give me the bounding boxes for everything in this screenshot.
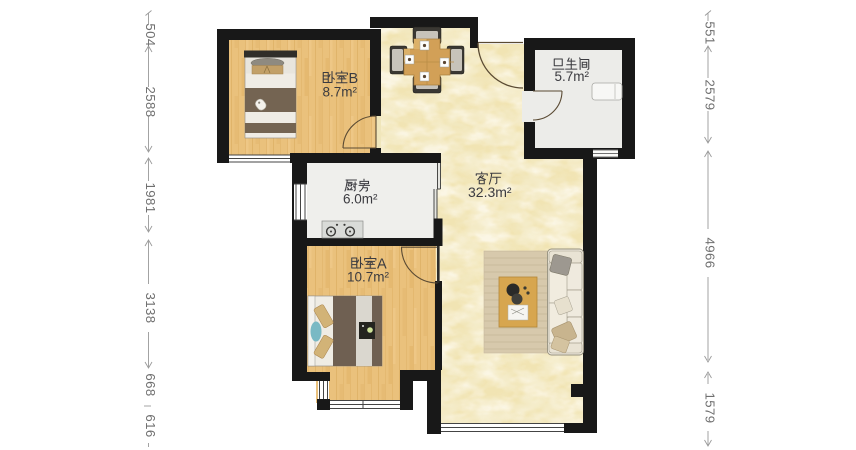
- svg-text:10.7m²: 10.7m²: [347, 270, 390, 285]
- svg-text:32.3m²: 32.3m²: [468, 184, 512, 200]
- svg-text:2588: 2588: [143, 87, 158, 118]
- svg-text:4966: 4966: [703, 238, 718, 269]
- svg-text:668: 668: [143, 373, 158, 396]
- svg-text:2579: 2579: [703, 80, 718, 111]
- svg-text:616: 616: [143, 414, 158, 437]
- svg-text:6.0m²: 6.0m²: [343, 192, 378, 207]
- svg-text:8.7m²: 8.7m²: [323, 85, 358, 100]
- svg-text:1579: 1579: [703, 393, 718, 424]
- svg-text:5.7m²: 5.7m²: [555, 69, 590, 84]
- svg-text:1981: 1981: [143, 183, 158, 214]
- svg-text:3138: 3138: [143, 293, 158, 324]
- svg-text:551: 551: [703, 21, 718, 44]
- svg-text:504: 504: [143, 23, 158, 46]
